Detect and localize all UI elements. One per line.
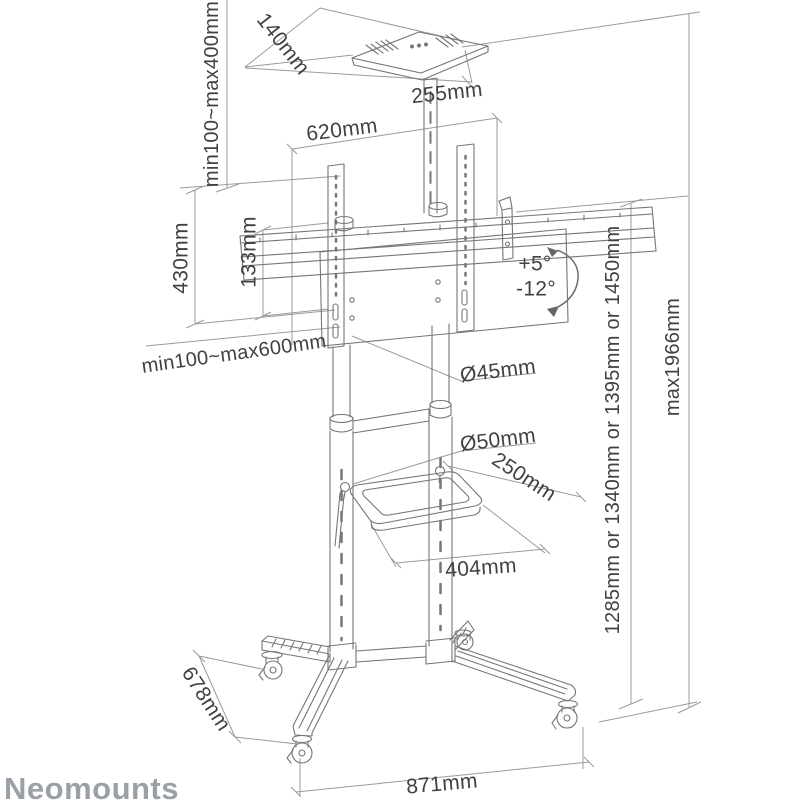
tilt-down-label: -12° xyxy=(516,279,556,300)
handle-crossbar xyxy=(353,409,429,433)
tilt-arrow-down xyxy=(547,306,559,317)
dim-430 xyxy=(186,186,335,328)
pole-collar-left xyxy=(330,415,353,423)
base-assembly xyxy=(259,621,578,763)
caster-lock-tab xyxy=(552,715,558,729)
base-hub-right xyxy=(426,638,455,664)
shelf-hook-left xyxy=(341,483,350,492)
rail-clamp xyxy=(499,197,513,260)
dim-label-max-height: max1966mm xyxy=(663,298,683,416)
base-leg-front-left xyxy=(293,656,348,736)
base-leg-front-right xyxy=(452,644,576,701)
pole-collar-right xyxy=(430,401,451,409)
pole-left xyxy=(330,345,353,652)
diagram-stage: 140mm min100~max400mm 255mm 620mm 430mm … xyxy=(0,0,800,800)
top-device-tray xyxy=(352,32,488,80)
stand-drawing xyxy=(240,32,656,763)
vesa-rail-left xyxy=(328,164,344,348)
tilt-up-label: +5° xyxy=(518,254,551,275)
product-dimension-diagram: { "brand": { "logo_text": "Neomounts" },… xyxy=(0,0,800,800)
tv-bracket-crossbar xyxy=(240,203,656,281)
dim-label-vesa-height: 430mm xyxy=(171,222,192,294)
caster-wheel-back-left xyxy=(259,652,282,681)
dim-label-shelf-width: 404mm xyxy=(445,555,518,581)
tension-knob-right xyxy=(429,203,447,217)
base-crossbar xyxy=(356,646,426,662)
dim-label-screen-height-options: 1285mm or 1340mm or 1395mm or 1450mm xyxy=(603,226,623,635)
dim-label-rail-offset: 133mm xyxy=(239,216,260,288)
laptop-shelf xyxy=(335,467,482,549)
caster-wheel-front-right xyxy=(552,701,578,730)
dim-label-tray-column-range: min100~max400mm xyxy=(202,1,222,187)
brand-logo: Neomounts xyxy=(4,771,179,807)
base-hub-left xyxy=(328,643,356,670)
